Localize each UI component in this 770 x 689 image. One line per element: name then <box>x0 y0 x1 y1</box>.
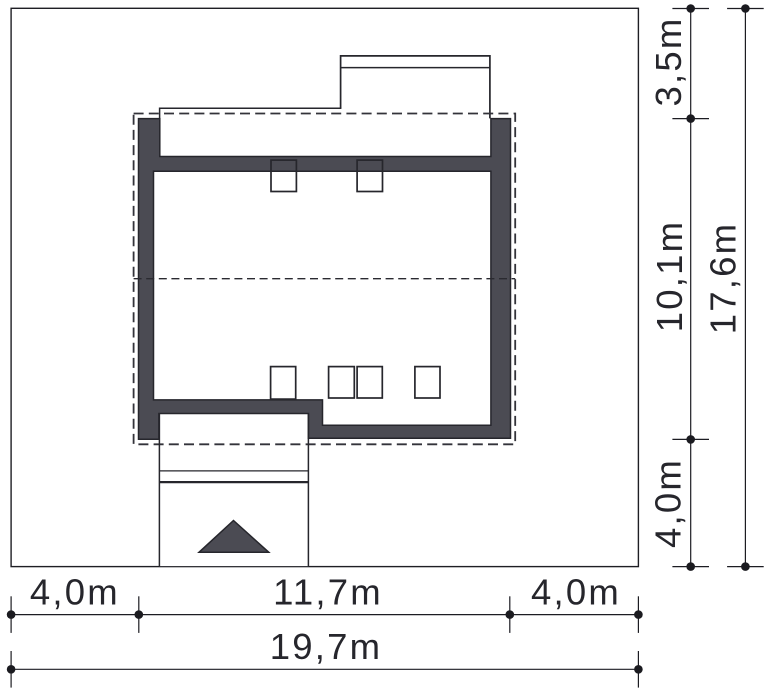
svg-text:4,0m: 4,0m <box>30 572 120 613</box>
svg-text:10,1m: 10,1m <box>649 220 690 332</box>
svg-text:4,0m: 4,0m <box>648 458 689 548</box>
svg-text:11,7m: 11,7m <box>273 572 383 613</box>
svg-text:4,0m: 4,0m <box>531 572 621 613</box>
svg-text:17,6m: 17,6m <box>703 222 744 334</box>
svg-text:19,7m: 19,7m <box>270 626 382 667</box>
svg-text:3,5m: 3,5m <box>648 17 689 107</box>
